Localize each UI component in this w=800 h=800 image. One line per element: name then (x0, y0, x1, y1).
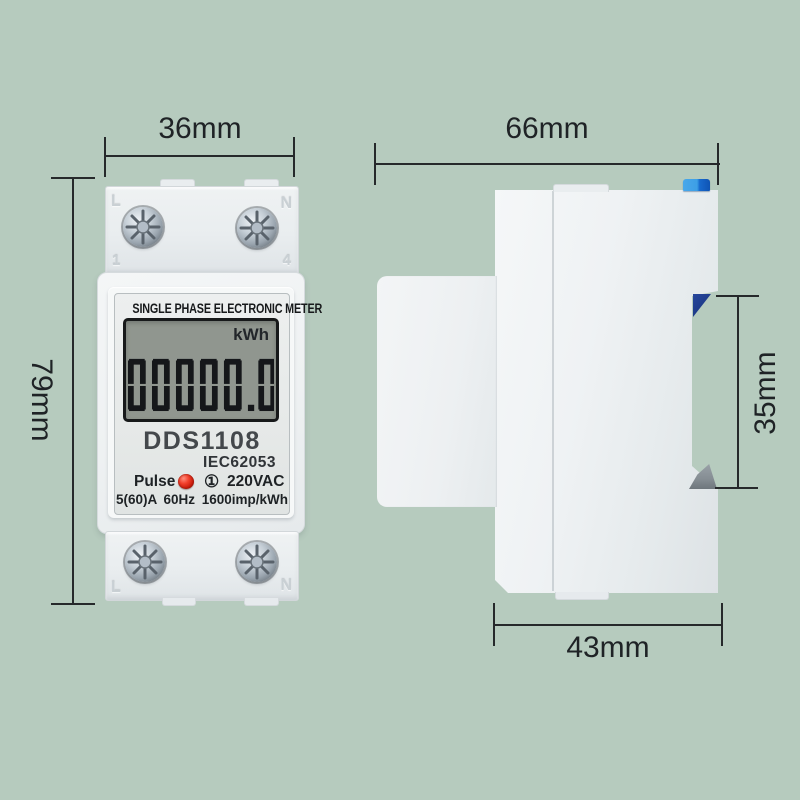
dim-din-slot-line (737, 296, 739, 489)
dim-base-depth-label: 43mm (513, 633, 703, 663)
dim-side-depth-line (375, 163, 720, 165)
model-number: DDS1108 (115, 427, 289, 456)
dim-front-height-tick-bottom (51, 603, 95, 605)
terminal-screw-icon (237, 208, 277, 248)
side-top-tab (553, 184, 609, 192)
front-bottom-tab-right (244, 598, 279, 606)
dim-front-width-tick-left (104, 137, 106, 177)
din-slot-upper-wedge (693, 294, 711, 317)
dim-side-depth-tick-right (717, 143, 719, 185)
lcd-unit-label: kWh (233, 325, 269, 345)
standard-code: IEC62053 (115, 454, 289, 472)
side-housing-back (495, 190, 718, 593)
lcd-digits (128, 358, 274, 414)
dim-din-slot-label: 35mm (751, 348, 781, 438)
pulse-led (178, 474, 194, 489)
dim-din-slot-tick-bottom (715, 487, 758, 489)
dim-front-width-line (105, 155, 295, 157)
terminal-label-4: 4 (283, 252, 291, 269)
din-clip-blue (683, 179, 710, 191)
terminal-screw-icon (123, 207, 163, 247)
dim-base-depth-tick-left (493, 603, 495, 646)
dim-front-height-label: 79mm (26, 355, 56, 445)
dim-din-slot-tick-top (716, 295, 759, 297)
side-bottom-tab (555, 592, 609, 600)
terminal-label-L-bottom: L (111, 579, 121, 597)
side-housing-front (377, 276, 497, 507)
dim-base-depth-tick-right (721, 603, 723, 646)
pulse-label: Pulse (134, 473, 175, 491)
product-dimension-diagram: 36mm 79mm L N 1 4 (0, 0, 800, 800)
dim-front-height-tick-top (51, 177, 95, 179)
terminal-screw-icon (237, 542, 277, 582)
meter-face-panel: SINGLE PHASE ELECTRONIC METER kWh DDS110… (114, 293, 290, 515)
lcd-display: kWh (123, 318, 279, 422)
voltage-rating: 220VAC (227, 473, 284, 491)
dim-front-height-line (72, 178, 74, 605)
meter-title: SINGLE PHASE ELECTRONIC METER (132, 301, 271, 316)
terminal-label-1: 1 (112, 252, 120, 269)
dim-base-depth-line (494, 624, 722, 626)
dim-side-depth-tick-left (374, 143, 376, 185)
terminal-label-L-top: L (111, 193, 121, 211)
dim-front-width-tick-right (293, 137, 295, 177)
meter-front-view: 36mm 79mm L N 1 4 (0, 0, 340, 800)
spec-line: 5(60)A 60Hz 1600imp/kWh (115, 492, 289, 507)
terminal-label-N-bottom: N (280, 577, 292, 595)
phase-symbol: ① (204, 472, 219, 492)
meter-side-view: 66mm 35mm 43mm (340, 0, 800, 800)
dim-front-width-label: 36mm (105, 114, 295, 144)
terminal-screw-icon (125, 542, 165, 582)
terminal-label-N-top: N (280, 195, 292, 213)
front-bottom-tab-left (162, 598, 196, 606)
case-seam-line (552, 191, 554, 591)
dim-side-depth-label: 66mm (452, 114, 642, 144)
